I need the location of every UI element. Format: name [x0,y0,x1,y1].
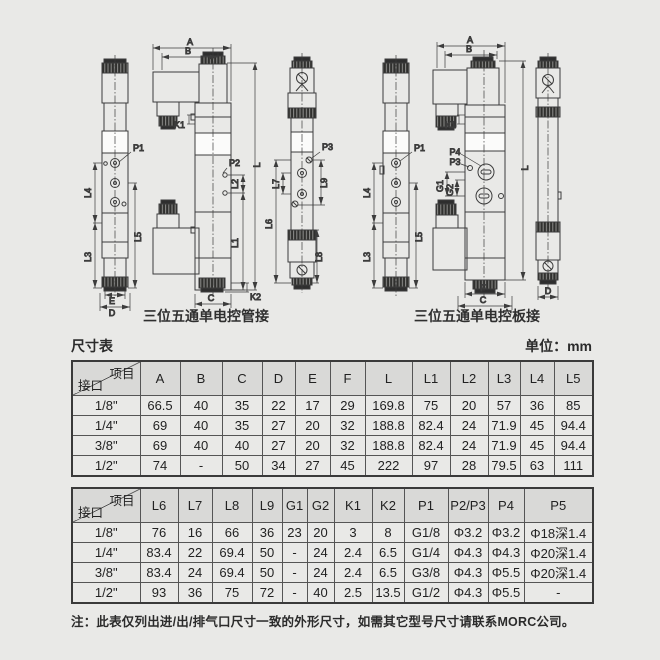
value-cell: 23 [282,523,307,543]
value-cell: 13.5 [372,583,404,604]
col-header-l9: L9 [252,488,282,523]
value-cell: 93 [140,583,178,604]
value-cell: Φ4.3 [488,543,524,563]
value-cell: - [282,583,307,604]
value-cell: 36 [520,396,554,416]
col-header-l7: L7 [178,488,212,523]
dim-label-k1: K1 [445,120,456,130]
dim-label-k1: K1 [174,120,185,130]
value-cell: 6.5 [372,563,404,583]
value-cell: Φ4.3 [448,583,488,604]
col-header-d: D [262,361,295,396]
value-cell: Φ18深1.4 [524,523,593,543]
value-cell: 35 [222,396,262,416]
drawing-side-view-plate: P1 L4 L3 L5 [362,55,425,296]
col-header-f: F [330,361,365,396]
value-cell: 50 [222,456,262,477]
value-cell: 69.4 [212,563,252,583]
dim-label-l: L [520,165,530,170]
dim-label-e: E [109,296,115,306]
table-row: 1/8"66.54035221729169.87520573685 [72,396,593,416]
value-cell: 40 [180,416,222,436]
table-title-row: 尺寸表 单位：mm [71,336,592,356]
dim-label-b: B [466,44,472,54]
value-cell: 71.9 [488,436,520,456]
value-cell: 36 [252,523,282,543]
caption-plate-connection: 三位五通单电控板接 [414,308,540,324]
dim-label-b: B [185,46,191,56]
dim-label-l5: L5 [133,232,143,242]
col-header-p5: P5 [524,488,593,523]
col-header-a: A [140,361,180,396]
port-cell: 3/8" [72,563,140,583]
value-cell: 35 [222,416,262,436]
drawing-front-view-plate: A B K1 P4 P3 G1 G2 L F C [433,35,530,310]
drawing-narrow-front-pipe: P3 L7 L6 L9 L8 [264,53,333,293]
value-cell: 40 [180,396,222,416]
col-header-c: C [222,361,262,396]
header-row: 项目接口ABCDEFLL1L2L3L4L5 [72,361,593,396]
dim-label-l7: L7 [271,179,281,189]
value-cell: 63 [520,456,554,477]
catalog-page: P1 L4 L3 L5 E D [0,0,660,660]
table-row: 1/4"83.42269.450-242.46.5G1/4Φ4.3Φ4.3Φ20… [72,543,593,563]
col-header-p4: P4 [488,488,524,523]
dim-label-d: D [109,308,116,318]
port-cell: 1/4" [72,543,140,563]
value-cell: 20 [295,416,330,436]
table-row: 1/2"93367572-402.513.5G1/2Φ4.3Φ5.5- [72,583,593,604]
value-cell: 2.4 [334,543,372,563]
corner-item-label: 项目 [109,490,134,509]
value-cell: 17 [295,396,330,416]
port-cell: 1/8" [72,523,140,543]
value-cell: Φ3.2 [488,523,524,543]
value-cell: G1/2 [404,583,448,604]
value-cell: Φ3.2 [448,523,488,543]
port-cell: 1/2" [72,583,140,604]
port-cell: 1/2" [72,456,140,477]
value-cell: 24 [307,563,334,583]
col-header-l6: L6 [140,488,178,523]
value-cell: 188.8 [365,416,412,436]
table-row: 3/8"83.42469.450-242.46.5G3/8Φ4.3Φ5.5Φ20… [72,563,593,583]
value-cell: 8 [372,523,404,543]
value-cell: 82.4 [412,436,450,456]
dimension-section: 尺寸表 单位：mm 项目接口ABCDEFLL1L2L3L4L51/8"66.54… [71,336,592,630]
table-row: 1/4"694035272032188.882.42471.94594.4 [72,416,593,436]
caption-pipe-connection: 三位五通单电控管接 [143,308,269,324]
col-header-l3: L3 [488,361,520,396]
dim-label-l2: L2 [230,179,240,189]
value-cell: 32 [330,436,365,456]
value-cell: - [524,583,593,604]
value-cell: 83.4 [140,543,178,563]
footnote: 注：此表仅列出进/出/排气口尺寸一致的外形尺寸，如需其它型号尺寸请联系MORC公… [71,611,592,630]
value-cell: 20 [450,396,488,416]
value-cell: 97 [412,456,450,477]
port-cell: 3/8" [72,436,140,456]
col-header-k1: K1 [334,488,372,523]
value-cell: 45 [520,416,554,436]
value-cell: 57 [488,396,520,416]
col-header-k2: K2 [372,488,404,523]
col-header-l: L [365,361,412,396]
value-cell: 79.5 [488,456,520,477]
value-cell: 85 [554,396,593,416]
value-cell: Φ5.5 [488,563,524,583]
value-cell: 74 [140,456,180,477]
value-cell: 169.8 [365,396,412,416]
value-cell: 40 [307,583,334,604]
value-cell: 36 [178,583,212,604]
dim-label-p3: P3 [449,157,460,167]
corner-cell: 项目接口 [72,361,140,396]
value-cell: - [180,456,222,477]
value-cell: 69 [140,436,180,456]
dim-label-c: C [480,295,487,305]
dim-label-d: D [545,286,552,296]
table-row: 3/8"694040272032188.882.42471.94594.4 [72,436,593,456]
value-cell: 45 [330,456,365,477]
value-cell: 27 [262,416,295,436]
col-header-l2: L2 [450,361,488,396]
value-cell: 69 [140,416,180,436]
dim-label-p1: P1 [414,143,425,153]
value-cell: Φ4.3 [448,563,488,583]
value-cell: 40 [180,436,222,456]
col-header-g1: G1 [282,488,307,523]
col-header-l5: L5 [554,361,593,396]
value-cell: 75 [412,396,450,416]
value-cell: - [282,563,307,583]
value-cell: 2.5 [334,583,372,604]
value-cell: 27 [295,456,330,477]
dim-label-l9: L9 [319,178,329,188]
value-cell: 28 [450,456,488,477]
value-cell: - [282,543,307,563]
value-cell: 22 [262,396,295,416]
port-cell: 1/8" [72,396,140,416]
value-cell: Φ4.3 [448,543,488,563]
value-cell: 40 [222,436,262,456]
value-cell: 34 [262,456,295,477]
value-cell: 222 [365,456,412,477]
corner-item-label: 项目 [109,363,134,382]
dim-label-l3: L3 [83,252,93,262]
dim-label-l: L [252,162,262,167]
value-cell: 32 [330,416,365,436]
dim-label-f: F [480,283,486,293]
dim-label-g2: G2 [445,184,455,196]
value-cell: 20 [295,436,330,456]
dim-label-l3: L3 [362,252,372,262]
value-cell: Φ20深1.4 [524,543,593,563]
drawing-front-view-pipe: A B K1 P2 L2 L1 L K2 C [153,37,262,308]
value-cell: 27 [262,436,295,456]
col-header-e: E [295,361,330,396]
dim-label-l6: L6 [264,219,274,229]
table-row: 1/2"74-50342745222972879.563111 [72,456,593,477]
value-cell: 20 [307,523,334,543]
value-cell: Φ5.5 [488,583,524,604]
dimension-table-2: 项目接口L6L7L8L9G1G2K1K2P1P2/P3P4P51/8"76166… [71,487,594,604]
value-cell: 50 [252,563,282,583]
dim-label-g1: G1 [435,180,445,192]
col-header-l1: L1 [412,361,450,396]
corner-cell: 项目接口 [72,488,140,523]
dim-label-l5: L5 [414,232,424,242]
table-row: 1/8"76166636232038G1/8Φ3.2Φ3.2Φ18深1.4 [72,523,593,543]
unit-label: 单位：mm [525,336,592,356]
dim-label-l4: L4 [83,188,93,198]
col-header-g2: G2 [307,488,334,523]
dim-label-p4: P4 [449,147,460,157]
dim-table-title: 尺寸表 [71,336,113,356]
dim-label-p1: P1 [133,143,144,153]
value-cell: 66.5 [140,396,180,416]
value-cell: 6.5 [372,543,404,563]
value-cell: 3 [334,523,372,543]
col-header-p2p3: P2/P3 [448,488,488,523]
value-cell: 71.9 [488,416,520,436]
value-cell: 75 [212,583,252,604]
value-cell: 94.4 [554,436,593,456]
value-cell: G1/4 [404,543,448,563]
value-cell: 94.4 [554,416,593,436]
drawing-side-view-pipe: P1 L4 L3 L5 E D [83,55,144,318]
dim-label-l8: L8 [314,252,324,262]
dim-label-p3: P3 [322,142,333,152]
col-header-l8: L8 [212,488,252,523]
col-header-b: B [180,361,222,396]
value-cell: 50 [252,543,282,563]
value-cell: G1/8 [404,523,448,543]
drawing-narrow-side-plate: D [536,53,561,300]
value-cell: 45 [520,436,554,456]
value-cell: 29 [330,396,365,416]
dim-label-l1: L1 [230,238,240,248]
value-cell: G3/8 [404,563,448,583]
value-cell: 111 [554,456,593,477]
value-cell: 24 [178,563,212,583]
col-header-p1: P1 [404,488,448,523]
dim-label-k2: K2 [250,292,261,302]
value-cell: Φ20深1.4 [524,563,593,583]
value-cell: 76 [140,523,178,543]
drawing-area: P1 L4 L3 L5 E D [0,0,660,335]
value-cell: 16 [178,523,212,543]
value-cell: 24 [450,436,488,456]
dimension-table-1: 项目接口ABCDEFLL1L2L3L4L51/8"66.540352217291… [71,360,594,477]
dim-label-l4: L4 [362,188,372,198]
value-cell: 22 [178,543,212,563]
value-cell: 24 [450,416,488,436]
value-cell: 82.4 [412,416,450,436]
value-cell: 188.8 [365,436,412,456]
col-header-l4: L4 [520,361,554,396]
header-row: 项目接口L6L7L8L9G1G2K1K2P1P2/P3P4P5 [72,488,593,523]
value-cell: 66 [212,523,252,543]
value-cell: 72 [252,583,282,604]
corner-port-label: 接口 [78,375,103,394]
value-cell: 83.4 [140,563,178,583]
corner-port-label: 接口 [78,502,103,521]
value-cell: 69.4 [212,543,252,563]
dim-label-p2: P2 [229,158,240,168]
value-cell: 24 [307,543,334,563]
value-cell: 2.4 [334,563,372,583]
dim-label-c: C [208,293,215,303]
port-cell: 1/4" [72,416,140,436]
